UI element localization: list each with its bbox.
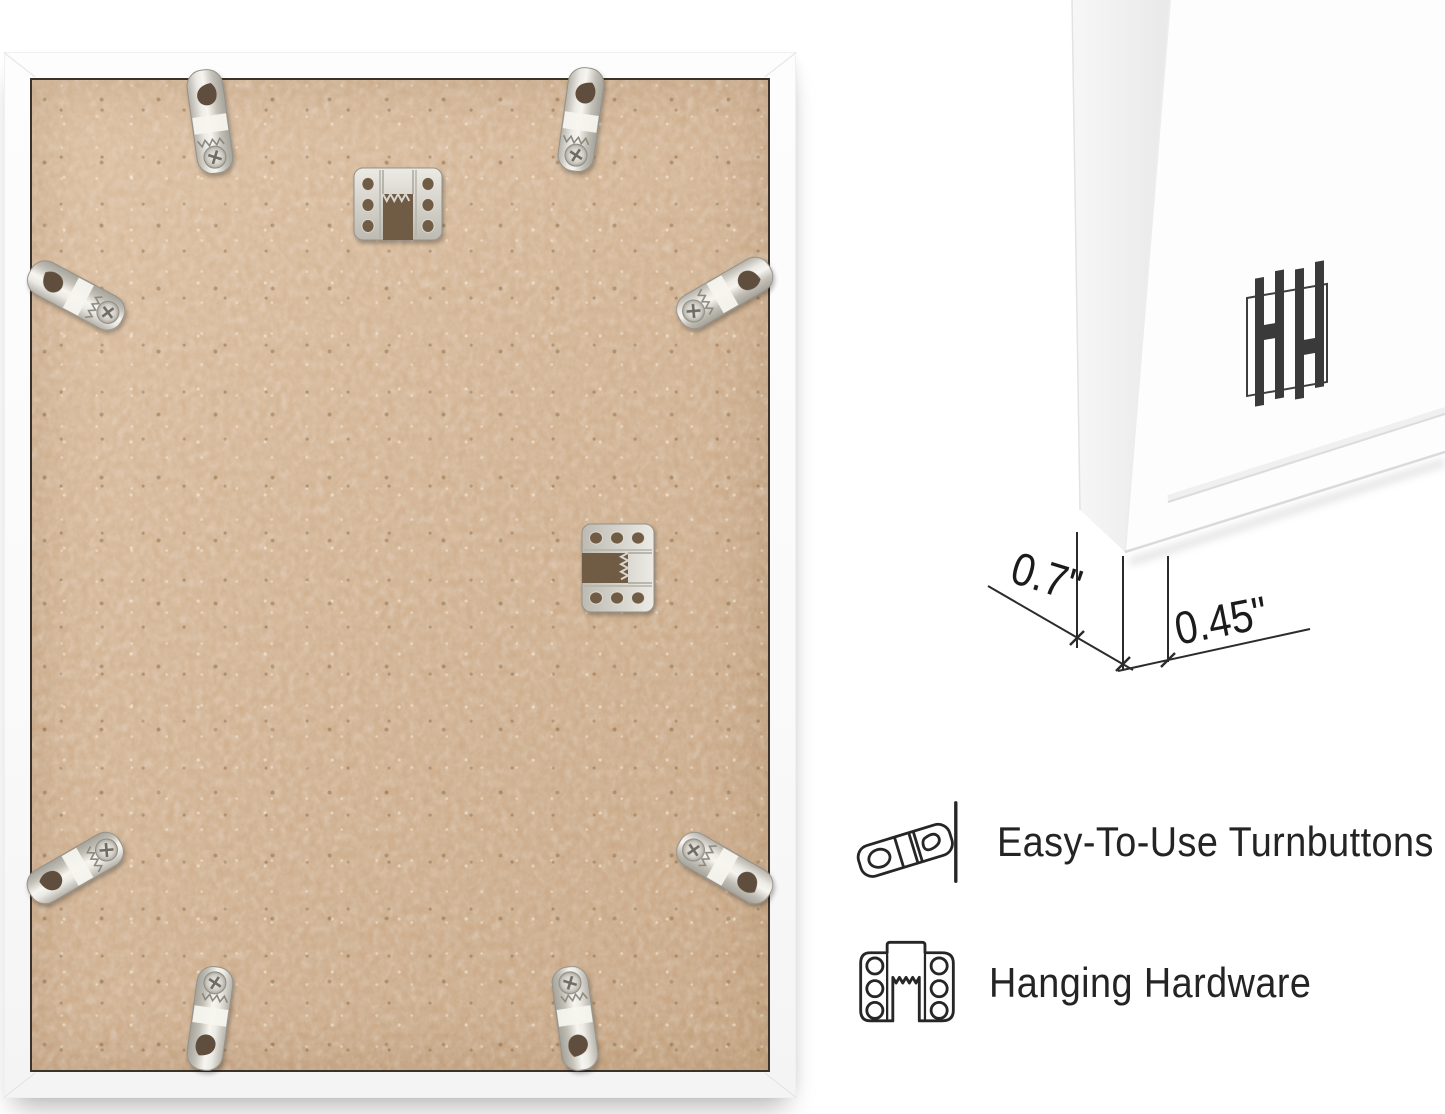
dimension-label-face-width: 0.45" — [1171, 588, 1272, 656]
product-infographic: { "page": { "background_color": "#ffffff… — [0, 0, 1445, 1114]
miter-joint-line — [764, 1073, 796, 1098]
backing-texture — [32, 80, 768, 1070]
frame-backing-board — [32, 80, 768, 1070]
frame-corner-detail: 0.7" 0.45" — [980, 0, 1445, 715]
feature-hanging-hardware: Hanging Hardware — [855, 933, 1347, 1033]
feature-label: Hanging Hardware — [989, 959, 1311, 1007]
miter-joint-line — [764, 52, 796, 77]
turnbutton-icon — [855, 794, 967, 890]
frame-back-photo — [4, 52, 796, 1098]
feature-label: Easy-To-Use Turnbuttons — [997, 818, 1434, 866]
feature-turnbuttons: Easy-To-Use Turnbuttons — [855, 793, 1445, 891]
miter-joint-line — [3, 1073, 35, 1098]
hanging-hardware-icon — [855, 935, 959, 1031]
miter-joint-line — [3, 52, 35, 77]
frame-front-face — [1125, 0, 1445, 552]
